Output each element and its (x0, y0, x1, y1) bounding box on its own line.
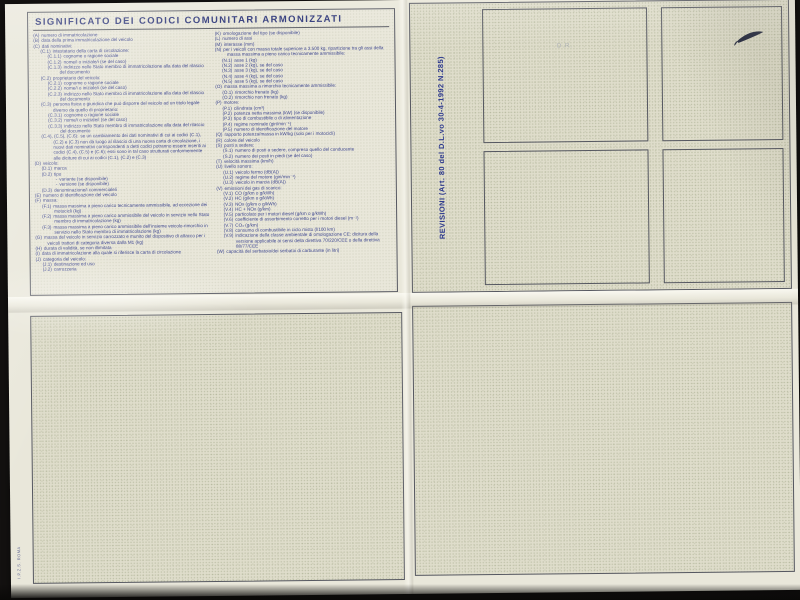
legend-item: (W)capacità del serbatoio/dei serbatoi d… (217, 248, 392, 255)
harmonized-codes-legend: SIGNIFICATO DEI CODICI COMUNITARI ARMONI… (27, 8, 398, 296)
revision-stamp-box-3 (483, 149, 650, 285)
legend-item-code: (N.3) (222, 68, 232, 73)
legend-item-code: (L) (215, 36, 221, 41)
legend-item-code: (V.8) (224, 228, 234, 233)
legend-item-code: (C) (33, 43, 39, 48)
legend-item: (C.4), (C.5), (C.6):se un cambiamento de… (34, 132, 209, 160)
legend-item-text: capacità del serbatoio/dei serbatoi di c… (226, 248, 339, 254)
legend-item-code: (I) (36, 251, 40, 256)
revision-stamp-box-2 (661, 6, 783, 141)
legend-item-code: (D.1) (42, 166, 52, 171)
legend-item-code: (C.2) (41, 75, 51, 80)
legend-item-code: (Q) (216, 132, 223, 137)
legend-item-code: - (56, 176, 58, 181)
faint-stamp-mark: D.R. (557, 44, 573, 50)
legend-item-code: (P.2) (223, 111, 232, 116)
blank-panel-bottom-right (412, 302, 795, 576)
legend-item-code: (N.4) (222, 73, 232, 78)
printer-code: I.P.Z.S. ROMA (16, 541, 21, 585)
legend-item-text: rimorchio non frenato (kg) (235, 94, 288, 100)
legend-item-code: (H) (35, 246, 41, 251)
legend-item-code: (P) (215, 100, 221, 105)
legend-columns: (A)numero di immatricolazione(B)data del… (33, 29, 391, 272)
revisioni-label: REVISIONI (Art. 80 del D.L.vo 30-4-1992 … (436, 56, 447, 239)
legend-column-left: (A)numero di immatricolazione(B)data del… (33, 31, 210, 273)
legend-item-code: (C.3) (41, 102, 51, 107)
legend-item-text: coefficiente di assorbimento corretto pe… (235, 216, 358, 222)
legend-item-code: (D) (35, 161, 41, 166)
legend-item-code: (O.1) (222, 89, 233, 94)
legend-item-code: - (56, 182, 58, 187)
legend-item-code: (V.2) (223, 196, 233, 201)
revisioni-section: REVISIONI (Art. 80 del D.L.vo 30-4-1992 … (409, 0, 792, 293)
legend-item-code: (S.1) (223, 148, 233, 153)
legend-item-code: (B) (33, 38, 39, 43)
legend-item-code: (W) (217, 249, 224, 254)
legend-item-code: (E) (35, 193, 41, 198)
legend-item-text: marca (54, 166, 67, 171)
legend-item-code: (K) (215, 31, 221, 36)
legend-item-code: (U.1) (223, 169, 233, 174)
legend-item-text: data della prima immatricolazione del ve… (41, 37, 132, 43)
blank-panel-bottom-left (30, 312, 405, 584)
legend-item-code: (C.2.2) (48, 86, 62, 91)
legend-item-code: (V.4) (224, 207, 234, 212)
legend-item-code: (N.1) (222, 57, 232, 62)
legend-item-code: (V.9) (224, 233, 234, 238)
photo-background: SIGNIFICATO DEI CODICI COMUNITARI ARMONI… (0, 0, 800, 600)
legend-item-code: (U) (216, 164, 222, 169)
legend-item-code: (J) (36, 257, 41, 262)
legend-item-code: (J.2) (43, 267, 52, 272)
legend-column-right: (K)omologazione del tipo (se disponibile… (215, 29, 392, 271)
legend-item-code: (V) (216, 185, 222, 190)
legend-item-code: (F) (35, 198, 41, 203)
legend-item-code: (T) (216, 159, 222, 164)
legend-item-text: omologazione del tipo (se disponibile) (223, 30, 300, 36)
legend-item-code: (V.6) (224, 217, 234, 222)
document-sheet: SIGNIFICATO DEI CODICI COMUNITARI ARMONI… (5, 0, 800, 598)
legend-item-code: (A) (33, 33, 39, 38)
legend-title: SIGNIFICATO DEI CODICI COMUNITARI ARMONI… (33, 12, 389, 31)
legend-item-code: (D.3) (42, 187, 52, 192)
legend-item-code: (O) (215, 84, 222, 89)
legend-item-code: (R) (216, 137, 222, 142)
legend-item-code: (V.3) (223, 201, 233, 206)
legend-item-text: data di immatricolazione alla quale si r… (42, 250, 181, 256)
legend-item-code: (J.1) (43, 262, 52, 267)
legend-item-text: rapporto potenza/massa in kW/kg (solo pe… (224, 131, 335, 137)
legend-item-code: (P.4) (223, 121, 232, 126)
pen-mark (734, 26, 767, 52)
legend-item: (V.9)indicazione della classe ambientale… (217, 232, 392, 250)
legend-item-text: indicazione della classe ambientale di o… (235, 232, 379, 249)
legend-item-code: (P.3) (223, 116, 232, 121)
legend-item-code: (P.1) (222, 105, 231, 110)
legend-item-code: (C.3.2) (48, 118, 62, 123)
legend-item-code: (F.2) (42, 214, 51, 219)
legend-item-text: massa massima a rimorchio tecnicamente a… (224, 83, 336, 89)
legend-item: (J.2)carrozzeria (36, 265, 211, 272)
legend-item-code: (F.3) (42, 224, 51, 229)
legend-item-code: (P.5) (223, 127, 232, 132)
legend-item-code: (S) (216, 143, 222, 148)
revision-stamp-box-4 (663, 148, 785, 283)
legend-item-code: (V.5) (224, 212, 234, 217)
legend-item-code: (G) (35, 235, 42, 240)
legend-item-text: tipo (54, 171, 61, 176)
legend-item-text: carrozzeria (54, 267, 77, 272)
legend-item-code: (V.7) (224, 223, 234, 228)
legend-item-code: (C.1.1) (47, 54, 61, 59)
revision-stamp-box-1: D.R. (482, 7, 649, 143)
legend-item-code: (M) (215, 42, 222, 47)
revision-stamp-grid: D.R. (482, 6, 785, 285)
legend-item-code: (F.1) (42, 203, 51, 208)
legend-item-code: (N) (215, 47, 221, 52)
legend-item-code: (D.2) (42, 171, 52, 176)
legend-item-text: numero di identificazione del veicolo (43, 192, 117, 198)
legend-item-text: numero dei posti in piedi (se del caso) (235, 152, 312, 158)
